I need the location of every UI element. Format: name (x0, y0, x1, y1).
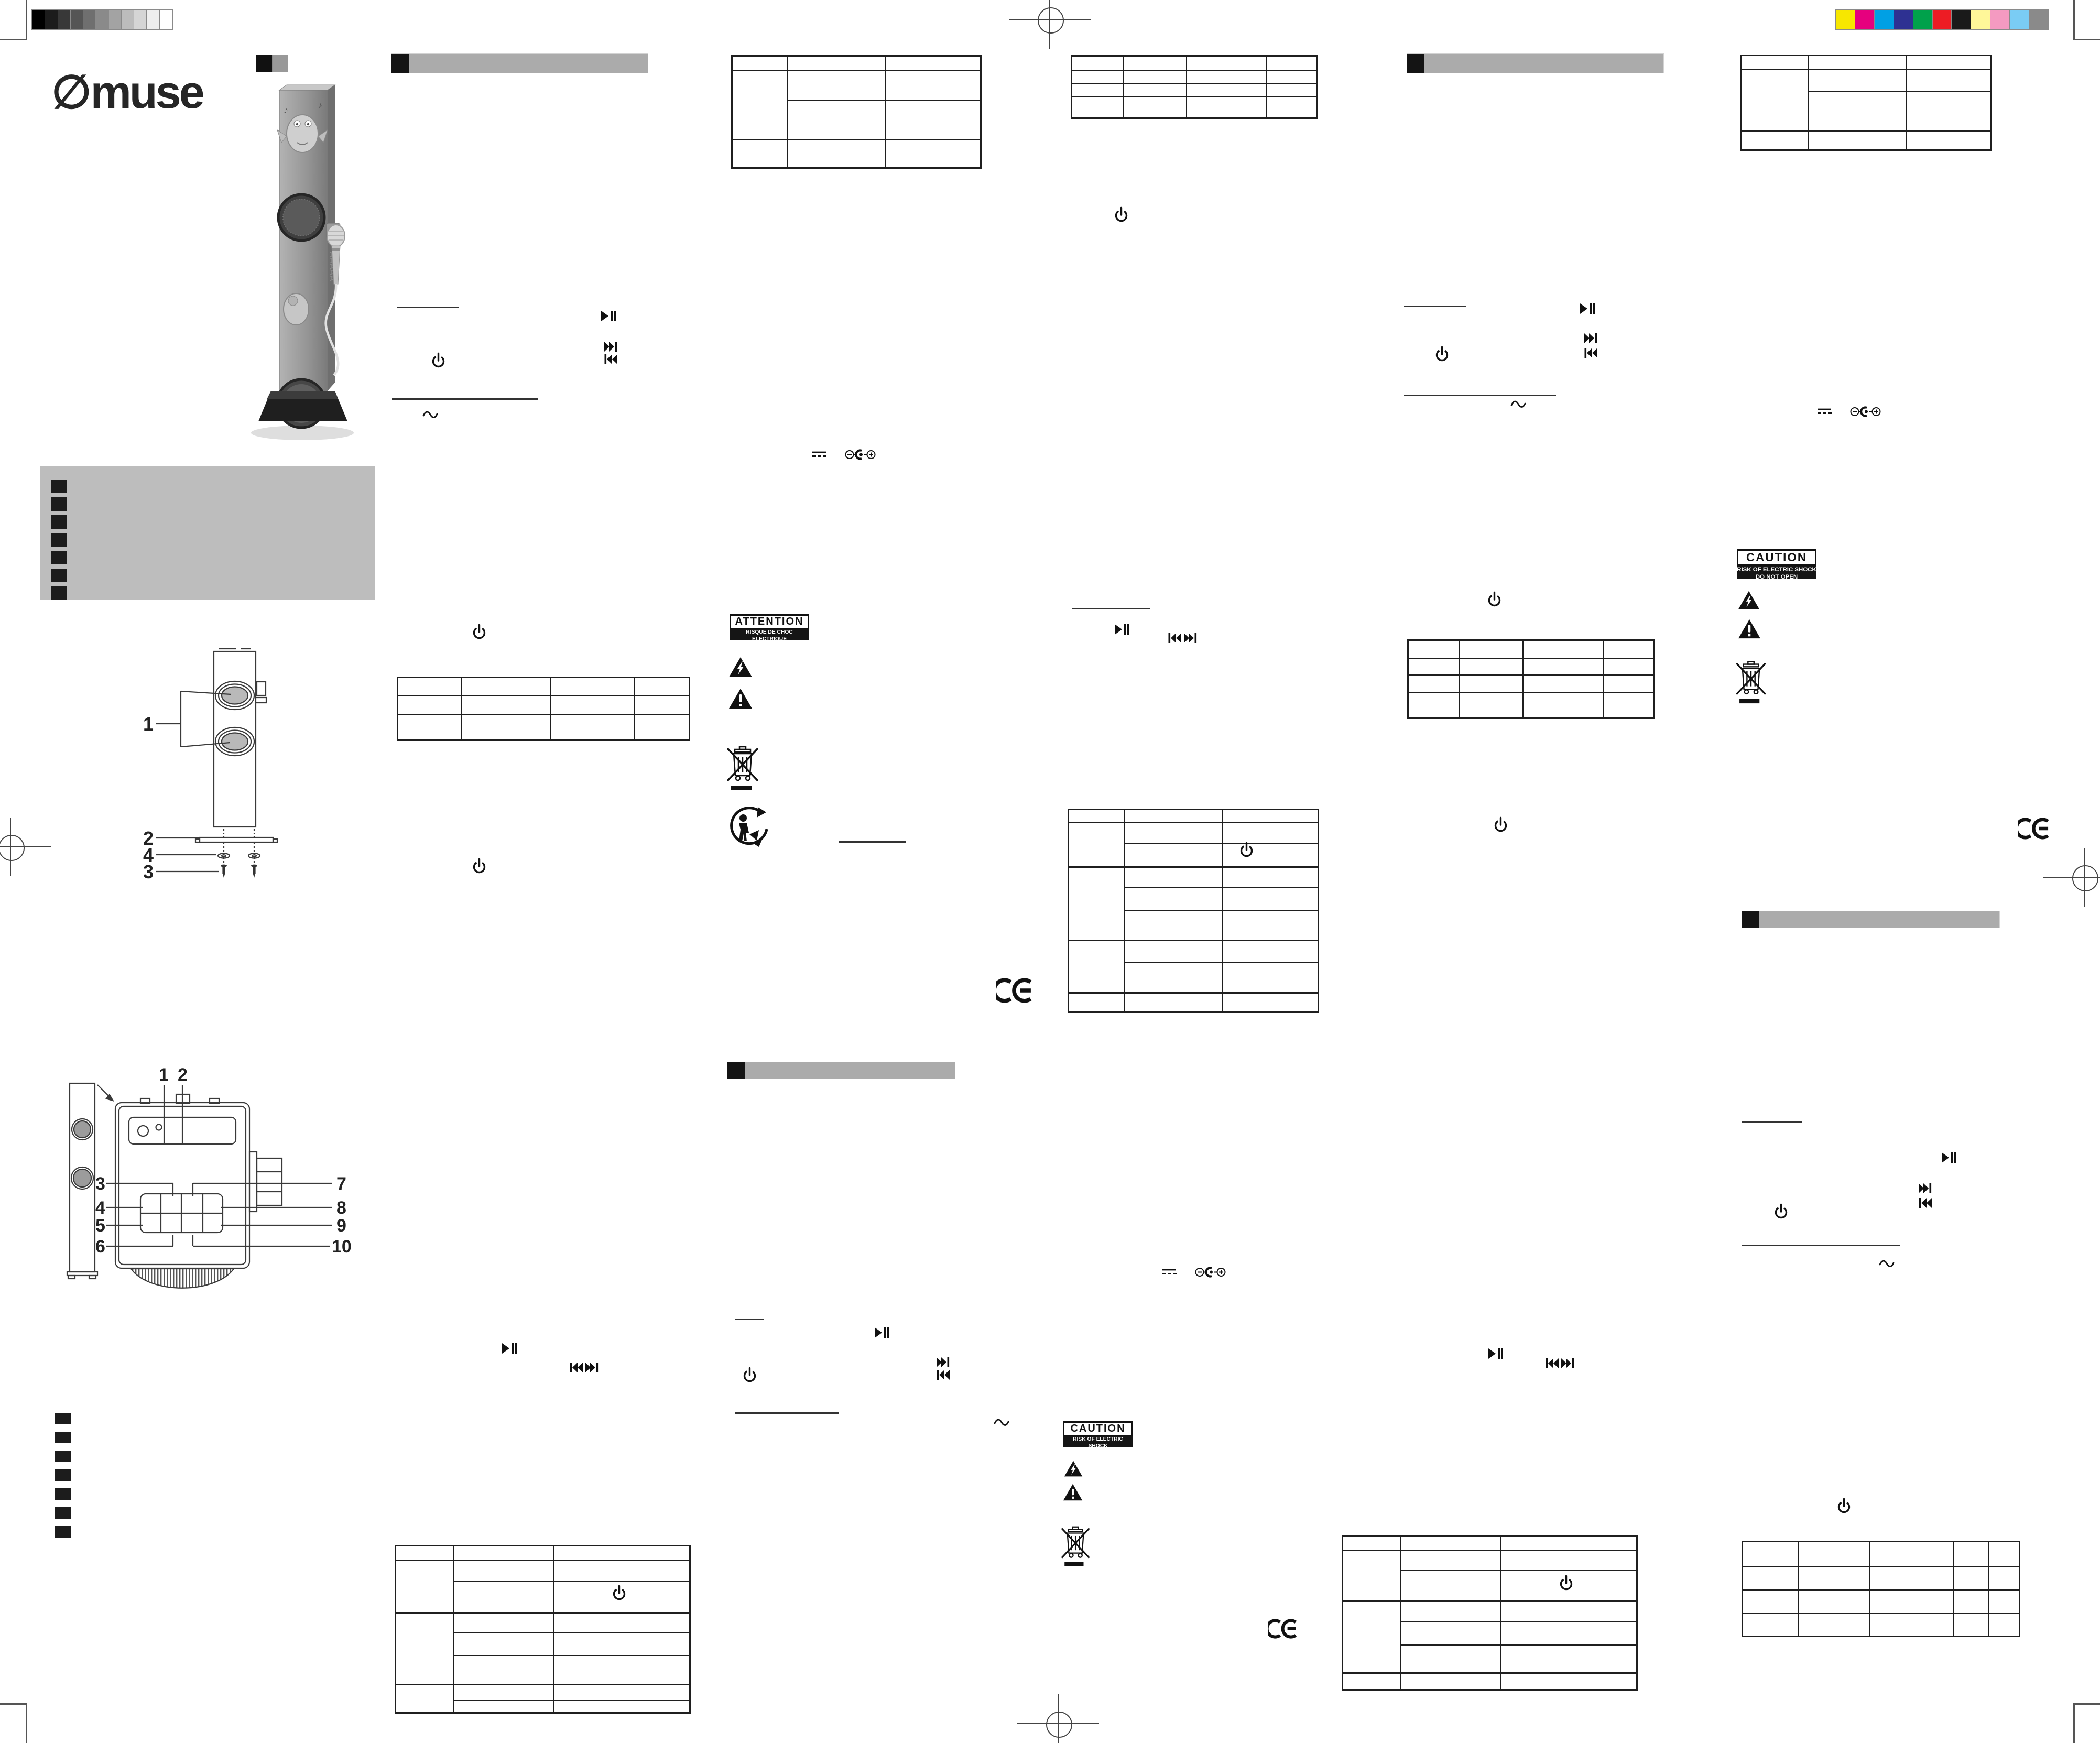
table-row-line (1743, 1613, 2019, 1614)
index-square (55, 1413, 71, 1424)
language-index-box (40, 466, 375, 600)
warning-title: CAUTION (1737, 549, 1816, 566)
table-row-line (1343, 1672, 1636, 1674)
warning-title: ATTENTION (730, 614, 809, 629)
calibration-swatch (134, 10, 147, 29)
power-icon (1239, 842, 1254, 860)
table-row-line (398, 714, 689, 715)
warning-line: NE PAS OUVRIR (730, 643, 809, 650)
section-header-bar (1742, 911, 2000, 928)
dc-icon (1161, 1267, 1177, 1279)
calibration-swatch (1913, 10, 1933, 29)
spec-table-3 (1740, 55, 1992, 151)
polarity-icon (1850, 406, 1881, 420)
registration-mark-circle (1046, 1712, 1072, 1738)
table-column-line (1459, 641, 1460, 717)
index-square (51, 551, 67, 564)
index-square (55, 1451, 71, 1462)
table-column-line (1798, 1542, 1799, 1636)
table-row-line (1409, 674, 1653, 676)
play-pause-icon (1580, 303, 1595, 317)
warn-triangle-icon (728, 688, 753, 710)
calibration-swatch (83, 10, 96, 29)
table-row-line (1400, 1621, 1636, 1622)
bolt-triangle-icon (1738, 590, 1760, 610)
table-row-line (733, 70, 980, 71)
section-bullet (1407, 54, 1424, 73)
heading-underline (1404, 306, 1466, 307)
table-row-line (1124, 843, 1318, 844)
table-row-line (1742, 69, 1990, 70)
calibration-swatch (1855, 10, 1875, 29)
table-row-line (1069, 992, 1318, 994)
ce-icon (1268, 1615, 1300, 1642)
index-square (51, 569, 67, 582)
calibration-swatch (1836, 10, 1855, 29)
mini-swatch-pair (256, 55, 288, 72)
ce-icon (2018, 813, 2052, 844)
calibration-swatch (96, 10, 108, 29)
table-column-line (1869, 1542, 1870, 1636)
registration-mark-circle (0, 835, 25, 861)
calibration-swatch (160, 10, 172, 29)
table-row-line (1808, 91, 1990, 92)
polarity-icon (845, 449, 876, 463)
callout-right-9: 9 (336, 1216, 346, 1236)
warning-line: DO NOT OPEN (1063, 1450, 1133, 1457)
table-row-line (1400, 1570, 1636, 1571)
power-icon (1494, 816, 1508, 835)
spec-table-8 (1342, 1535, 1638, 1691)
calibration-swatch (1875, 10, 1894, 29)
table-column-line (550, 678, 551, 739)
table-column-line (1186, 57, 1187, 117)
callout-speakers: 1 (143, 713, 154, 735)
power-icon (1114, 206, 1128, 225)
table-column-line (461, 678, 462, 739)
table-row-line (453, 1581, 689, 1582)
table-column-line (885, 57, 886, 167)
caution-label: CAUTIONRISK OF ELECTRIC SHOCKDO NOT OPEN (1063, 1421, 1133, 1447)
power-icon (472, 624, 486, 642)
crop-mark (26, 0, 27, 40)
prev-icon (569, 1363, 583, 1375)
prev-icon (1168, 633, 1182, 646)
spec-table-9 (1742, 1541, 2020, 1637)
play-pause-icon (1114, 624, 1130, 638)
warning-line: RISK OF ELECTRIC SHOCK (1737, 566, 1816, 573)
heading-underline (1742, 1121, 1802, 1123)
table-column-line (453, 1546, 454, 1712)
callout-right-7: 7 (336, 1174, 346, 1194)
crop-mark (2073, 0, 2075, 40)
calibration-swatch (1933, 10, 1952, 29)
prev-icon (1545, 1358, 1559, 1371)
play-pause-icon (502, 1343, 517, 1357)
index-square (51, 480, 67, 493)
callout-left-3: 3 (95, 1174, 105, 1194)
calibration-swatch (32, 10, 45, 29)
table-row-line (396, 1612, 689, 1614)
calibration-swatch (2029, 10, 2048, 29)
ac-icon (994, 1418, 1009, 1430)
calibration-swatch (147, 10, 159, 29)
heading-underline (1404, 395, 1556, 396)
table-row-line (453, 1700, 689, 1701)
table-column-line (1906, 56, 1907, 149)
crop-mark (0, 1703, 26, 1705)
spec-table-4 (397, 677, 690, 741)
next-icon (936, 1357, 950, 1370)
arrow-icon (105, 1094, 114, 1102)
volume-knob (257, 1158, 282, 1205)
spec-table-7 (395, 1545, 691, 1714)
table-row-line (396, 1684, 689, 1685)
table-row-line (1743, 1566, 2019, 1567)
power-icon (1435, 346, 1449, 365)
calibration-swatch (256, 55, 273, 72)
manual-page: ∅muse AAAAA ♪ ♪ (0, 0, 2100, 1743)
prev-icon (1584, 348, 1598, 361)
table-column-line (1123, 57, 1124, 117)
table-row-line (1072, 70, 1316, 71)
dc-icon (811, 450, 827, 461)
calibration-swatch (1990, 10, 2010, 29)
callout-top-2: 2 (178, 1065, 188, 1085)
table-column-line (1400, 1537, 1401, 1689)
callout-left-5: 5 (95, 1216, 105, 1236)
table-row-line (1400, 1644, 1636, 1646)
table-row-line (787, 100, 980, 101)
bolt-triangle-icon (1064, 1460, 1083, 1477)
heading-underline (735, 1412, 839, 1414)
table-row-line (1124, 887, 1318, 888)
heading-underline (1742, 1245, 1900, 1246)
next-icon (1918, 1183, 1932, 1196)
heading-underline (392, 398, 538, 400)
weee-icon (726, 744, 760, 791)
power-icon (743, 1367, 757, 1386)
play-pause-icon (874, 1327, 890, 1341)
calibration-swatch (58, 10, 71, 29)
dc-icon (1816, 407, 1832, 418)
section-header-bar (727, 1062, 955, 1079)
brand-logo: ∅muse (51, 69, 203, 115)
power-icon (1559, 1575, 1573, 1594)
table-row-line (398, 695, 689, 696)
table-row-line (1072, 96, 1316, 97)
calibration-swatch (1952, 10, 1971, 29)
table-column-line (553, 1546, 554, 1712)
index-square (51, 586, 67, 600)
table-row-line (1069, 940, 1318, 941)
table-column-line (1266, 57, 1267, 117)
index-square (55, 1526, 71, 1538)
bottom-speaker (131, 1269, 234, 1288)
power-icon (1837, 1498, 1851, 1517)
grayscale-bar (31, 9, 173, 30)
table-row-line (1124, 910, 1318, 911)
product-photo: AAAAA ♪ ♪ (223, 79, 356, 451)
table-row-line (396, 1560, 689, 1561)
warning-line: DO NOT OPEN (1737, 573, 1816, 581)
power-icon (612, 1585, 626, 1604)
power-icon (431, 352, 445, 371)
index-square (55, 1488, 71, 1500)
table-column-line (1808, 56, 1809, 149)
section-header-bar (1407, 53, 1664, 73)
index-square (51, 533, 67, 547)
spec-table-6 (1068, 809, 1319, 1013)
power-icon (1774, 1203, 1788, 1222)
table-column-line (1603, 641, 1604, 717)
prev-icon (604, 354, 618, 367)
heading-underline (1072, 608, 1150, 609)
warn-triangle-icon (1063, 1483, 1083, 1501)
prev-icon (936, 1370, 950, 1382)
crop-mark (2073, 1703, 2075, 1743)
callout-left-4: 4 (95, 1198, 105, 1218)
top-view-diagram: 1 2 3 4 5 6 7 8 9 10 (52, 1059, 388, 1331)
front-view-diagram: 1 2 4 3 (134, 631, 364, 1045)
table-column-line (1500, 1537, 1501, 1689)
calibration-swatch (1894, 10, 1913, 29)
crop-mark (26, 1703, 27, 1743)
color-bar (1835, 9, 2049, 30)
table-row-line (1124, 962, 1318, 963)
table-row-line (1072, 83, 1316, 84)
table-row-line (1409, 658, 1653, 659)
calibration-swatch (122, 10, 134, 29)
play-pause-icon (601, 310, 616, 324)
table-row-line (733, 139, 980, 140)
calibration-swatch (2010, 10, 2029, 29)
callout-right-10: 10 (332, 1237, 352, 1257)
screw-icons (221, 865, 257, 878)
triman-icon (727, 806, 769, 848)
section-header-bar (391, 53, 648, 73)
caution-label: CAUTIONRISK OF ELECTRIC SHOCKDO NOT OPEN (1737, 549, 1816, 579)
svg-text:♪: ♪ (284, 105, 288, 115)
section-bullet (727, 1062, 745, 1079)
next-icon (1584, 333, 1598, 346)
attention-label: ATTENTIONRISQUE DE CHOC ELECTRIQUENE PAS… (730, 614, 809, 640)
calibration-swatch (1971, 10, 1990, 29)
heading-underline (735, 1319, 764, 1320)
heading-underline (839, 841, 906, 843)
ac-icon (422, 410, 438, 422)
index-square (55, 1507, 71, 1519)
index-square (55, 1469, 71, 1481)
next-icon (1561, 1358, 1575, 1371)
table-column-line (1988, 1542, 1989, 1636)
table-column-line (1953, 1542, 1954, 1636)
weee-icon (1735, 659, 1768, 704)
table-row-line (1343, 1600, 1636, 1602)
warn-triangle-icon (1738, 618, 1761, 639)
callout-left-6: 6 (95, 1237, 105, 1257)
crop-mark (2074, 39, 2100, 40)
table-row-line (453, 1655, 689, 1656)
ac-icon (1879, 1259, 1895, 1271)
svg-text:♪: ♪ (318, 101, 322, 110)
next-icon (604, 342, 618, 354)
index-square (51, 497, 67, 511)
table-row-line (1743, 1589, 2019, 1591)
callout-screws: 3 (143, 861, 154, 883)
next-icon (585, 1363, 599, 1375)
table-column-line (1222, 810, 1223, 1011)
section-bullet (1742, 911, 1759, 928)
power-icon (1487, 591, 1501, 610)
table-row-line (1069, 866, 1318, 868)
table-row-line (453, 1632, 689, 1633)
play-pause-icon (1488, 1348, 1504, 1362)
calibration-swatch (273, 55, 289, 72)
table-column-line (634, 678, 635, 739)
crop-mark (0, 39, 26, 40)
ce-icon (996, 974, 1036, 1007)
ac-icon (1510, 400, 1526, 411)
next-icon (1183, 633, 1198, 646)
table-column-line (1522, 641, 1524, 717)
table-row-line (1069, 822, 1318, 823)
section-bullet (391, 54, 409, 73)
registration-mark-circle (1038, 7, 1064, 34)
spec-table-1 (731, 55, 982, 169)
heading-underline (397, 307, 459, 308)
registration-mark-circle (2072, 865, 2098, 891)
warning-line: RISQUE DE CHOC ELECTRIQUE (730, 629, 809, 643)
table-column-line (1124, 810, 1125, 1011)
bolt-triangle-icon (728, 656, 753, 678)
play-pause-icon (1941, 1152, 1957, 1166)
callout-right-8: 8 (336, 1198, 346, 1218)
weee-icon (1061, 1523, 1091, 1569)
spec-table-5 (1407, 639, 1655, 719)
crop-mark (2074, 1703, 2100, 1705)
index-square (51, 515, 67, 529)
prev-icon (1918, 1198, 1932, 1211)
warning-line: RISK OF ELECTRIC SHOCK (1063, 1436, 1133, 1450)
warning-title: CAUTION (1063, 1421, 1133, 1436)
power-icon (472, 858, 486, 877)
spec-table-2 (1071, 55, 1318, 119)
table-column-line (787, 57, 788, 167)
callout-top-1: 1 (159, 1065, 169, 1085)
calibration-swatch (45, 10, 58, 29)
polarity-icon (1195, 1266, 1226, 1281)
logo-mark-icon: ∅ (51, 66, 90, 118)
calibration-swatch (71, 10, 83, 29)
index-square (55, 1432, 71, 1443)
table-row-line (1409, 692, 1653, 693)
calibration-swatch (109, 10, 122, 29)
logo-text: muse (91, 66, 203, 118)
table-row-line (1343, 1550, 1636, 1551)
table-row-line (1742, 130, 1990, 132)
